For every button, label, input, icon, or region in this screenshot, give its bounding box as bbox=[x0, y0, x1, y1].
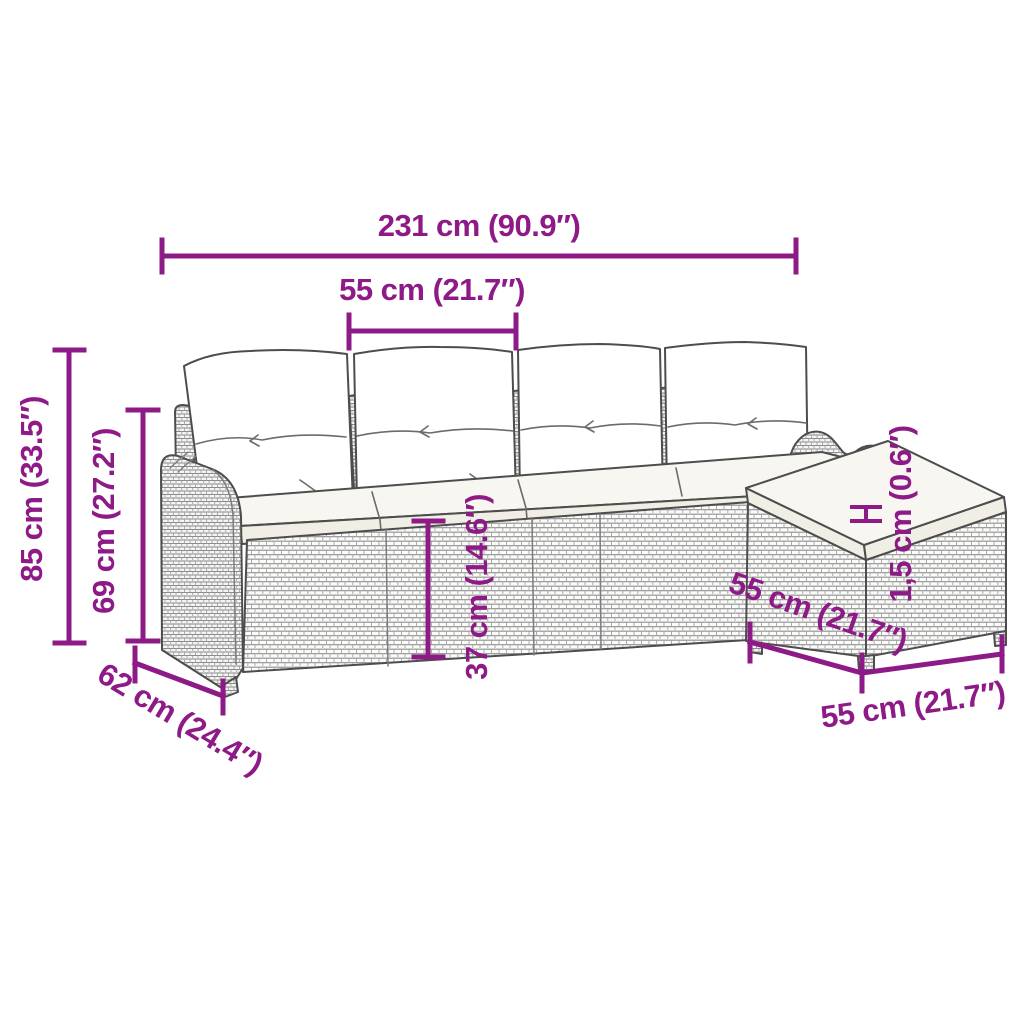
label-module-width: 55 cm (21.7″) bbox=[339, 272, 525, 308]
dim-total-height-line bbox=[55, 350, 84, 643]
label-seat-height: 37 cm (14.6″) bbox=[459, 494, 495, 680]
dim-total-width-line bbox=[162, 240, 796, 272]
label-total-width: 231 cm (90.9″) bbox=[378, 208, 581, 244]
label-backrest-height: 69 cm (27.2″) bbox=[86, 428, 122, 614]
label-total-height: 85 cm (33.5″) bbox=[14, 396, 50, 582]
sofa-illustration bbox=[0, 0, 1024, 1024]
dim-module-width-line bbox=[349, 315, 516, 348]
dimension-diagram: 231 cm (90.9″) 55 cm (21.7″) 85 cm (33.5… bbox=[0, 0, 1024, 1024]
left-armrest bbox=[161, 452, 243, 697]
label-cushion-thickness: 1,5 cm (0.6″) bbox=[883, 425, 919, 602]
dim-backrest-height-line bbox=[128, 410, 158, 641]
